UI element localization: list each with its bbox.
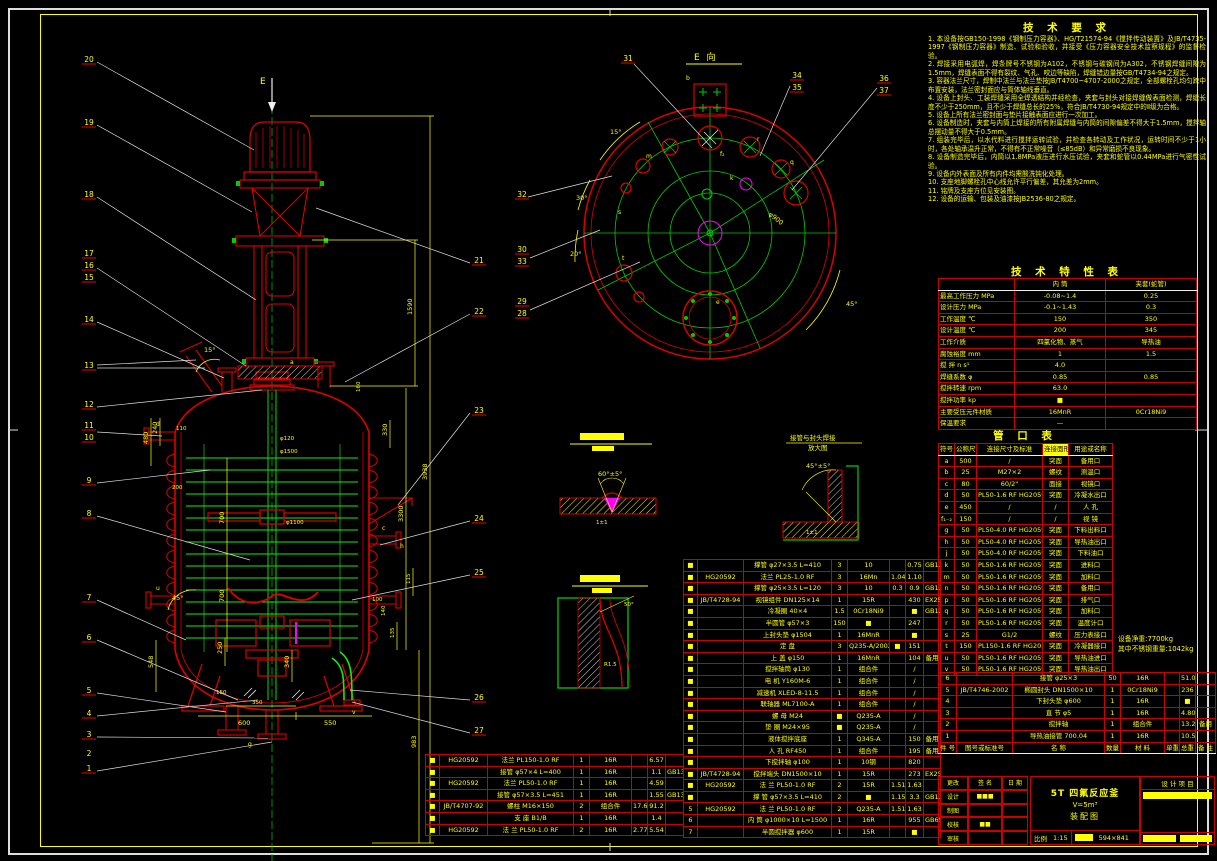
- table-row: ■联轴器 ML7100-A1组合件/: [684, 699, 941, 711]
- table-row: ■JB/T4728-94搅拌端头 DN1500×10115R273EX257: [684, 768, 941, 780]
- svg-text:36: 36: [879, 74, 889, 83]
- svg-text:110: 110: [176, 426, 187, 432]
- svg-text:115: 115: [406, 573, 412, 584]
- table-row: 主要受压元件材质16MnR0Cr18Ni9: [939, 406, 1197, 418]
- title-block-right: 设 计 项 目: [1140, 776, 1215, 845]
- table-row: 5HG20592法 兰 PL50-1.0 RF2Q235-A1.511.63: [684, 803, 941, 815]
- svg-text:φ900: φ900: [767, 210, 785, 227]
- table-row: ■下搅拌轴 φ100110钢820: [684, 757, 941, 769]
- svg-text:37: 37: [879, 86, 889, 95]
- svg-text:25: 25: [474, 568, 484, 577]
- svg-text:3300: 3300: [397, 505, 405, 522]
- list-item: 7. 组装完毕后，以水代料进行搅拌运转试验，并检查各转动及工作状况，运转时间不少…: [928, 136, 1206, 153]
- table-row: ■螺 母 M24■Q235-A/: [684, 710, 941, 722]
- table-row: ■HG20592法 兰 PL50-1.0 RF215R1.511.63: [684, 780, 941, 792]
- drawing-title: 5T 四氟反应釜: [1051, 786, 1120, 799]
- list-item: 2. 焊接采用电弧焊，焊条牌号不锈钢为A102，不锈钢与碳钢间为A302，不锈钢…: [928, 60, 1206, 77]
- svg-text:r: r: [757, 136, 760, 143]
- table-row: ■接管 φ57×4 L=400116R1.1GB13296: [426, 766, 684, 778]
- svg-text:d: d: [156, 421, 160, 428]
- list-item: 12. 设备的运输、包装及油漆按JB2536-80之规定。: [928, 195, 1206, 203]
- table-row: ■JB/T4728-94视镜组件 DN125×14115R430EX257: [684, 594, 941, 606]
- top-view-letters: b f₂ r q m s t e k: [618, 75, 794, 306]
- svg-text:30°: 30°: [576, 194, 588, 202]
- nozzle-table: 符号 公称尺寸 连接尺寸及标准 连接面形式 用途或名称 a500/突面备用口b2…: [938, 443, 1113, 676]
- svg-text:e: e: [716, 299, 720, 306]
- svg-text:200: 200: [172, 485, 183, 491]
- table-row: c8060/2"面接视镜口: [939, 478, 1113, 490]
- table-row: 6接管 φ25×35016R51.0: [939, 673, 1216, 685]
- svg-text:11: 11: [84, 421, 94, 430]
- svg-text:φ1100: φ1100: [286, 520, 304, 526]
- bom-table-middle: ■撑管 φ27×3.5 L=4103100.75GB13296■HG20592法…: [683, 559, 941, 838]
- table-row: 设计温度 ℃200345: [939, 325, 1197, 337]
- e-marker-label: E: [260, 77, 268, 87]
- svg-text:2: 2: [87, 749, 92, 758]
- top-view: E 向: [570, 51, 858, 359]
- svg-text:14: 14: [84, 315, 94, 324]
- table-row: ■液体搅拌底座1Q345-A150备用: [684, 733, 941, 745]
- reducer-bolts: [232, 181, 328, 243]
- table-row: 7半圆搅拌器 φ600115R■: [684, 826, 941, 838]
- table-row: ■JB/T4707-92螺柱 M16×1502组合件17.691.2: [426, 801, 684, 813]
- front-view: E: [144, 77, 412, 861]
- svg-text:27: 27: [474, 726, 484, 735]
- table-row: ■搅拌轴筒 φ1301组合件/: [684, 664, 941, 676]
- project-label: 设 计 项 目: [1141, 777, 1214, 790]
- project-value-chip: [1143, 792, 1212, 799]
- svg-text:1: 1: [87, 764, 92, 773]
- weld-detail-2: 50° R1.5: [558, 575, 648, 688]
- table-row: 3直 节 φ5116R4.80: [939, 707, 1216, 719]
- svg-text:160: 160: [356, 381, 362, 392]
- table-row: 搅 拌 n s¹4.0: [939, 360, 1197, 372]
- tech-table-title: 技 术 特 性 表: [938, 264, 1196, 279]
- e-arrow-icon: [268, 102, 276, 112]
- title-block: 更改 签 名 日 期 设计 ■■■ 制图 校核 ■■ 审核 5T 四氟反应釜 V…: [938, 776, 1215, 845]
- list-item: 1. 本设备按GB150-1998《钢制压力容器》、HG/T21574-94《搅…: [928, 35, 1206, 60]
- svg-text:15°: 15°: [204, 346, 216, 354]
- svg-text:50°: 50°: [624, 602, 634, 608]
- table-row: ■人 孔 RF4501组合件195备用: [684, 745, 941, 757]
- dimension-lines: [151, 116, 434, 843]
- svg-text:k: k: [730, 175, 734, 182]
- svg-text:16: 16: [84, 261, 94, 270]
- table-row: ■HG20592法兰 PL150-1.0 RF116R6.57: [426, 755, 684, 767]
- table-row: ■垫 圈 M24×95■Q235-A/: [684, 722, 941, 734]
- svg-text:接管与封头焊接: 接管与封头焊接: [790, 433, 836, 442]
- table-row: s25G1/2螺纹压力表接口: [939, 629, 1113, 641]
- table-row: 6内 筒 φ1000×10 L=1500116R955GB6527: [684, 815, 941, 827]
- table-row: e450//人 孔: [939, 501, 1113, 513]
- svg-text:31: 31: [623, 54, 633, 63]
- stainless-weight: 其中不锈钢重量:1042kg: [1118, 644, 1193, 654]
- table-row: ■冷凝圈 40×41.50Cr18Ni9■GB1220: [684, 606, 941, 618]
- sheet-size: 594×841: [1096, 834, 1132, 842]
- table-row: m50PL50-1.6 RF HG20592突面加料口: [939, 571, 1113, 583]
- svg-text:60°±5°: 60°±5°: [598, 470, 622, 478]
- nozzle-table-title: 管 口 表: [938, 428, 1112, 443]
- table-row: d50PL50-1.6 RF HG20593突面冷凝水出口: [939, 490, 1113, 502]
- table-row: t150PL150-1.6 RF HG20592突面冷凝器接口: [939, 641, 1113, 653]
- side-nozzles: [144, 342, 412, 608]
- svg-text:32: 32: [517, 190, 527, 199]
- gear-reducer: [236, 180, 324, 246]
- svg-text:350: 350: [252, 700, 263, 706]
- svg-text:s: s: [618, 209, 621, 216]
- list-item: 8. 设备制造完毕后，内筒以1.8MPa液压进行水压试验，夹套和蛇管以0.44M…: [928, 153, 1206, 170]
- svg-text:700: 700: [218, 590, 226, 602]
- svg-text:15°: 15°: [610, 128, 622, 136]
- table-row: 2搅拌轴1组合件13.2备用: [939, 719, 1216, 731]
- svg-text:1±1: 1±1: [806, 530, 818, 536]
- svg-text:a: a: [290, 359, 294, 366]
- svg-text:100: 100: [372, 597, 383, 603]
- weld-ticks: [244, 688, 304, 700]
- technical-requirements: 技 术 要 求 1. 本设备按GB150-1998《钢制压力容器》、HG/T21…: [928, 20, 1206, 204]
- table-row: 4下封头垫 φ600116R■: [939, 696, 1216, 708]
- table-row: p50PL50-1.6 RF HG20592突面排气口: [939, 594, 1113, 606]
- svg-text:45°: 45°: [172, 594, 184, 602]
- table-row: u50PL50-1.6 RF HG20592突面导热油进口: [939, 652, 1113, 664]
- table-row: g50PL50-4.0 RF HG20592突面下料出料口: [939, 525, 1113, 537]
- table-row: ■支 座 B1/B116R1.4: [426, 812, 684, 824]
- svg-text:v: v: [352, 709, 356, 716]
- title-block-center: 5T 四氟反应釜 V=5m³ 装配图 比例 1:15 594×841: [1030, 776, 1140, 845]
- svg-text:600: 600: [238, 719, 250, 727]
- scale-label: 比例: [1031, 833, 1050, 843]
- svg-text:23: 23: [474, 406, 484, 415]
- svg-text:h: h: [400, 543, 404, 550]
- svg-text:10: 10: [84, 433, 94, 442]
- table-row: ■电 机 Y160M-61组合件/: [684, 675, 941, 687]
- table-row: ■上封头垫 φ1504116MnR■: [684, 629, 941, 641]
- svg-text:21: 21: [474, 256, 484, 265]
- bom-table-right: 6接管 φ25×35016R51.05JB/T4746-2002椭圆封头 DN1…: [938, 672, 1216, 754]
- svg-text:5: 5: [87, 686, 92, 695]
- weld-detail-3: 接管与封头焊接 放大图 45°±5° 1±1: [783, 433, 862, 540]
- table-row: n50PL50-1.6 RF HG20592突面备用口: [939, 583, 1113, 595]
- table-row: ■定 盘3Q235-A/2002■151: [684, 641, 941, 653]
- svg-text:c: c: [382, 525, 385, 532]
- svg-text:15: 15: [84, 273, 94, 282]
- table-row: 搅拌功率 kp■: [939, 394, 1197, 406]
- svg-text:8: 8: [87, 509, 92, 518]
- svg-text:17: 17: [84, 249, 94, 258]
- table-row: k50PL50-1.6 RF HG20592突面进料口: [939, 559, 1113, 571]
- svg-text:f₂: f₂: [720, 151, 725, 158]
- svg-text:4: 4: [87, 709, 92, 718]
- table-row: ■撑 管 φ57×3.5 L=4102■1.153.3GB13296: [684, 791, 941, 803]
- table-row: 工作温度 ℃150350: [939, 313, 1197, 325]
- table-row: 腐蚀裕度 mm11.5: [939, 348, 1197, 360]
- table-row: ■撑管 φ25×3.5 L=1203100.30.9GB13296: [684, 583, 941, 595]
- table-row: q50PL50-1.6 RF HG20592突面加料口: [939, 606, 1113, 618]
- svg-text:t: t: [622, 255, 625, 262]
- table-row: ■半圆管 φ57×3150■247: [684, 617, 941, 629]
- svg-text:φ120: φ120: [280, 436, 295, 442]
- table-row: 焊缝系数 φ0.850.85: [939, 371, 1197, 383]
- svg-text:m: m: [646, 153, 652, 160]
- svg-text:340: 340: [283, 656, 291, 668]
- technical-requirements-title: 技 术 要 求: [928, 20, 1206, 35]
- bom-table-left: ■HG20592法兰 PL150-1.0 RF116R6.57■接管 φ57×4…: [425, 754, 684, 836]
- svg-text:480: 480: [142, 432, 150, 444]
- svg-text:7: 7: [87, 593, 92, 602]
- top-view-nozzles: [616, 126, 808, 302]
- svg-text:983: 983: [410, 736, 418, 748]
- weld-detail-1: 60°±5° 1±1: [560, 433, 656, 526]
- svg-text:45°: 45°: [846, 300, 858, 308]
- svg-text:放大图: 放大图: [808, 443, 828, 452]
- table-row: 搅拌转速 rpm63.0: [939, 383, 1197, 395]
- list-item: 3. 容器法兰尺寸，焊制中法兰与法兰垫按JB/T4700~4707-2000之规…: [928, 77, 1206, 94]
- scale-value: 1:15: [1050, 834, 1071, 842]
- svg-text:700: 700: [218, 512, 226, 524]
- svg-text:q: q: [790, 159, 794, 166]
- svg-text:6: 6: [87, 633, 92, 642]
- svg-text:9: 9: [87, 476, 92, 485]
- svg-text:b: b: [686, 75, 690, 82]
- list-item: 6. 设备制造时，夹套与内筒上焊接的所有附属焊缝与内筒的间隙偏差不得大于1.5m…: [928, 119, 1206, 136]
- svg-text:45°±5°: 45°±5°: [806, 462, 830, 470]
- svg-text:u: u: [156, 585, 160, 592]
- svg-text:250: 250: [216, 642, 224, 654]
- table-row: ■接管 φ57×3.5 L=451116R1.55GB13296: [426, 789, 684, 801]
- svg-text:29: 29: [517, 297, 527, 306]
- svg-text:330: 330: [381, 424, 389, 436]
- table-row: 5JB/T4746-2002椭圆封头 DN1500×1010Cr18Ni9236: [939, 684, 1216, 696]
- weight-note: 设备净重:7700kg 其中不锈钢重量:1042kg: [1118, 634, 1193, 654]
- svg-text:1±1: 1±1: [596, 520, 608, 526]
- table-row: ■HG20592法兰 PL50-1.0 RF116R4.59: [426, 778, 684, 790]
- svg-text:33: 33: [517, 257, 527, 266]
- table-row: b25M27×2螺纹测温口: [939, 467, 1113, 479]
- drawing-type: 装配图: [1070, 811, 1100, 822]
- svg-text:135: 135: [390, 627, 396, 638]
- table-row: 1导热油接管 700.04116R10.5: [939, 730, 1216, 742]
- svg-text:R1.5: R1.5: [604, 662, 617, 668]
- svg-text:24: 24: [474, 514, 484, 523]
- table-row: ■撑管 φ27×3.5 L=4103100.75GB13296: [684, 560, 941, 572]
- table-row: 设计压力 MPa-0.1~1.430.3: [939, 302, 1197, 314]
- table-row: h50PL50-4.0 RF HG20592突面导热油出口: [939, 536, 1113, 548]
- table-row: r50PL50-1.6 RF HG20592突面温度计口: [939, 617, 1113, 629]
- rev-chip: [1180, 835, 1213, 842]
- table-row: a500/突面备用口: [939, 455, 1113, 467]
- svg-text:φ1500: φ1500: [280, 449, 298, 455]
- svg-text:20°: 20°: [570, 250, 582, 258]
- svg-text:20: 20: [84, 55, 94, 64]
- table-row: ■减速机 XLED-8-11.51组合件/: [684, 687, 941, 699]
- svg-text:30: 30: [517, 245, 527, 254]
- svg-text:22: 22: [474, 307, 484, 316]
- top-view-angle-dims: [575, 122, 840, 330]
- svg-text:1590: 1590: [406, 298, 414, 315]
- table-row: ■HG20592法兰 PL25-1.0 RF316Mn1.041.10: [684, 571, 941, 583]
- technical-requirements-list: 1. 本设备按GB150-1998《钢制压力容器》、HG/T21574-94《搅…: [928, 35, 1206, 204]
- table-row: f₁₋₂150//视 镜: [939, 513, 1113, 525]
- motor: [244, 122, 316, 180]
- table-row: j50PL50-4.0 RF HG20592突面下料油口: [939, 548, 1113, 560]
- doc-number-chip: [1143, 835, 1176, 842]
- drawing-volume: V=5m³: [1073, 801, 1098, 809]
- svg-text:34: 34: [792, 71, 802, 80]
- svg-text:g: g: [248, 741, 252, 748]
- top-view-label: E 向: [694, 51, 718, 63]
- svg-text:12: 12: [84, 400, 94, 409]
- cad-drawing-page: E: [0, 0, 1217, 861]
- table-row: 工作介质四氯化物、蒸气导热油: [939, 336, 1197, 348]
- svg-text:19: 19: [84, 118, 94, 127]
- mount-pad: [238, 366, 322, 379]
- svg-text:140: 140: [381, 605, 387, 616]
- table-row: ■HG20592法 兰 PL50-1.0 RF216R2.775.54: [426, 824, 684, 836]
- svg-text:26: 26: [474, 693, 484, 702]
- table-row: ■上 盖 φ150116MnR104备用: [684, 652, 941, 664]
- list-item: 4. 设备上封头、工装焊缝采用全焊透结构并经检查，夹套与封头对接焊缝做表面检测，…: [928, 94, 1206, 111]
- svg-text:550: 550: [324, 719, 336, 727]
- technical-characteristics-table: 内 筒 夹套(蛇管) 最高工作压力 MPa-0.08~1.40.25设计压力 M…: [938, 278, 1197, 430]
- net-weight: 设备净重:7700kg: [1118, 634, 1193, 644]
- svg-text:35: 35: [792, 83, 802, 92]
- svg-text:13: 13: [84, 361, 94, 370]
- svg-text:3938: 3938: [421, 463, 429, 480]
- svg-text:18: 18: [84, 190, 94, 199]
- svg-text:3: 3: [87, 730, 92, 739]
- signature-grid: 更改 签 名 日 期 设计 ■■■ 制图 校核 ■■ 审核: [938, 776, 1030, 845]
- svg-text:28: 28: [517, 309, 527, 318]
- list-item: 10. 支座地脚螺栓孔中心线允许平行偏差，其允差为2mm。: [928, 178, 1206, 186]
- table-row: 最高工作压力 MPa-0.08~1.40.25: [939, 290, 1197, 302]
